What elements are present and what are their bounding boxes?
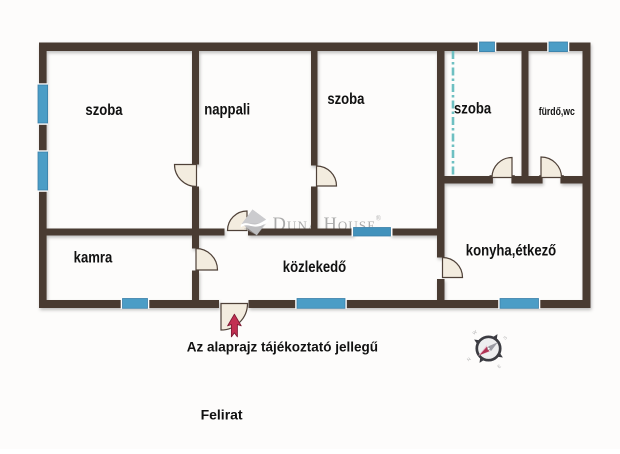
svg-text:szoba: szoba xyxy=(454,100,492,117)
svg-text:nappali: nappali xyxy=(204,101,250,118)
svg-text:Felirat: Felirat xyxy=(201,406,243,422)
svg-text:konyha,étkező: konyha,étkező xyxy=(466,242,556,259)
svg-text:Az alaprajz tájékoztató jelleg: Az alaprajz tájékoztató jellegű xyxy=(187,340,378,355)
svg-text:kamra: kamra xyxy=(74,249,113,266)
svg-text:szoba: szoba xyxy=(85,102,123,119)
svg-text:közlekedő: közlekedő xyxy=(283,259,346,276)
svg-text:fürdő,wc: fürdő,wc xyxy=(539,106,576,118)
svg-text:szoba: szoba xyxy=(327,91,365,108)
